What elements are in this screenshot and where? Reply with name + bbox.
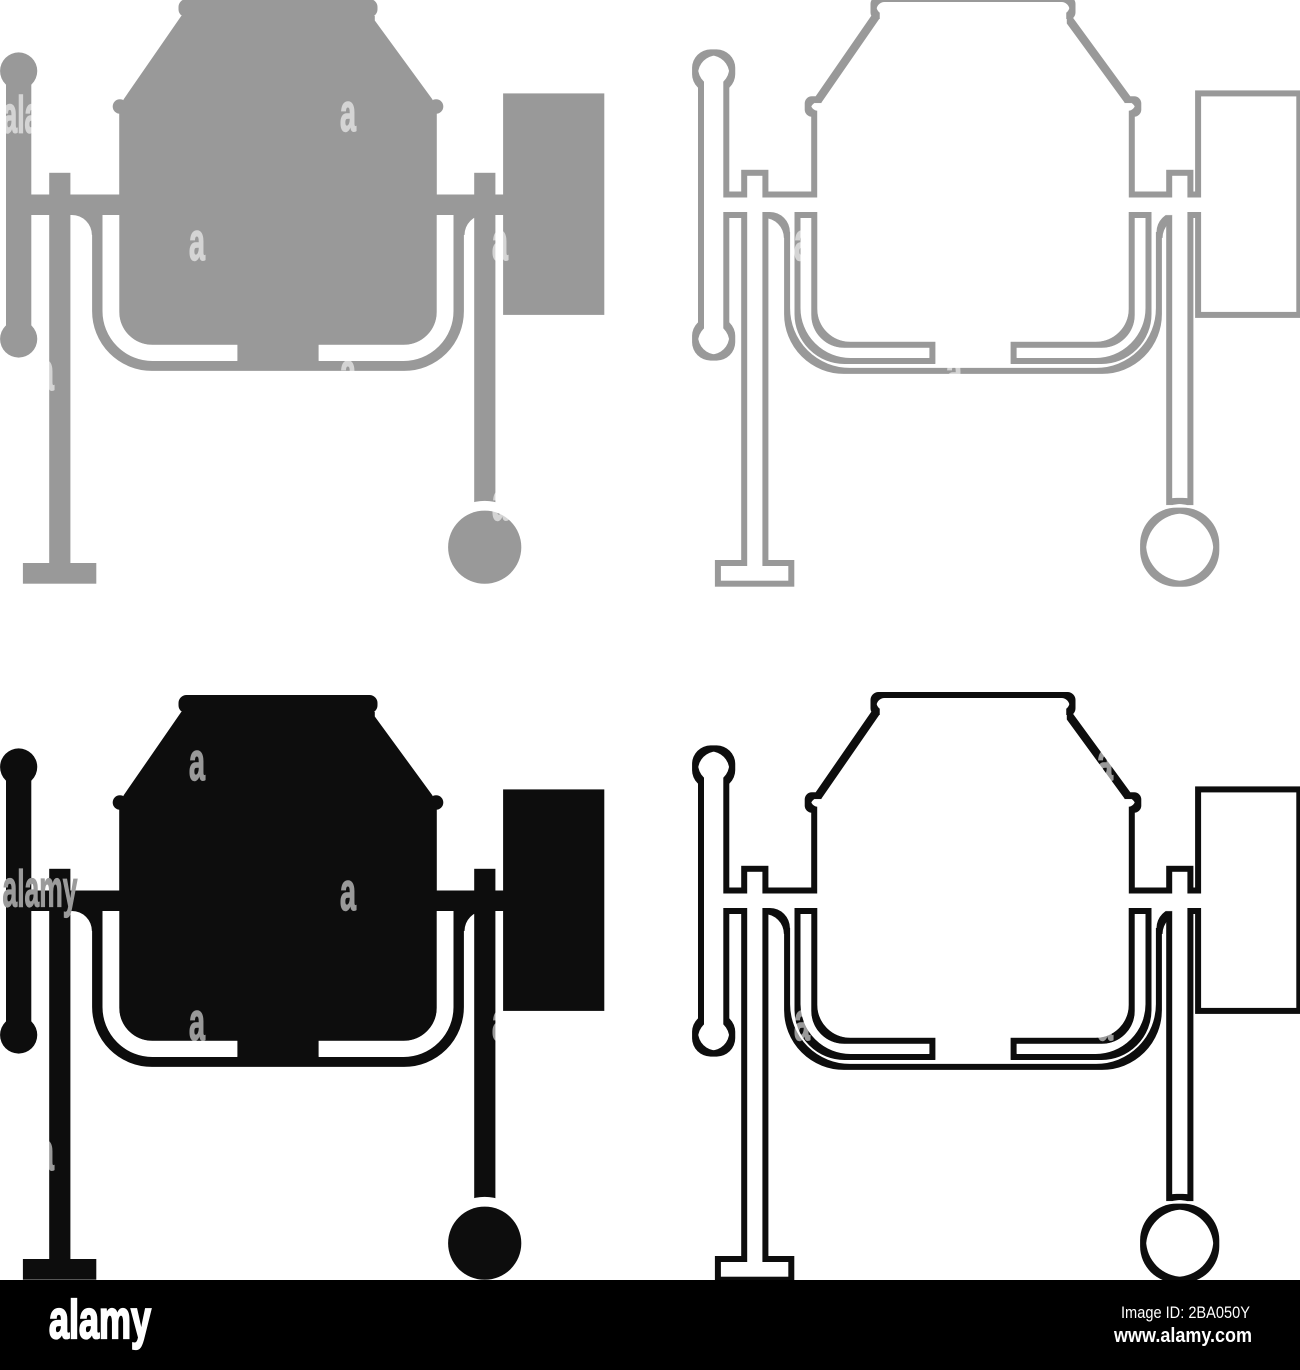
svg-text:a: a [946, 862, 963, 922]
svg-text:a: a [643, 342, 660, 402]
svg-text:a: a [1248, 342, 1265, 402]
svg-text:alamy: alamy [3, 861, 78, 919]
svg-text:a: a [1097, 212, 1114, 272]
svg-text:a: a [1248, 602, 1265, 662]
svg-text:a: a [946, 83, 963, 143]
svg-text:a: a [643, 1122, 660, 1182]
svg-text:a: a [492, 992, 509, 1052]
svg-text:alamy: alamy [49, 1290, 151, 1350]
svg-text:a: a [189, 212, 206, 272]
svg-text:a: a [1248, 1122, 1265, 1182]
svg-text:a: a [1248, 862, 1265, 922]
svg-text:a: a [492, 732, 509, 792]
svg-text:a: a [340, 83, 357, 143]
svg-text:a: a [340, 602, 357, 662]
svg-text:a: a [946, 342, 963, 402]
svg-text:a: a [492, 472, 509, 532]
svg-text:a: a [643, 602, 660, 662]
svg-text:a: a [492, 212, 509, 272]
svg-text:Image ID: 2BA050Y: Image ID: 2BA050Y [1121, 1303, 1250, 1322]
svg-text:a: a [794, 732, 811, 792]
svg-text:a: a [1097, 472, 1114, 532]
svg-text:a: a [38, 602, 55, 662]
svg-text:a: a [946, 602, 963, 662]
svg-text:a: a [1097, 732, 1114, 792]
svg-text:a: a [340, 1122, 357, 1182]
svg-text:a: a [794, 212, 811, 272]
svg-text:a: a [643, 83, 660, 143]
svg-text:a: a [1248, 83, 1265, 143]
svg-text:a: a [189, 472, 206, 532]
svg-text:a: a [340, 342, 357, 402]
svg-text:a: a [946, 1122, 963, 1182]
svg-text:a: a [794, 472, 811, 532]
svg-text:a: a [643, 862, 660, 922]
svg-text:a: a [189, 992, 206, 1052]
svg-text:a: a [794, 992, 811, 1052]
svg-text:www.alamy.com: www.alamy.com [1113, 1325, 1252, 1347]
svg-text:a: a [38, 1122, 55, 1182]
svg-text:a: a [189, 732, 206, 792]
svg-text:a: a [1097, 992, 1114, 1052]
svg-text:a: a [340, 862, 357, 922]
svg-text:alamy: alamy [3, 87, 78, 145]
svg-text:a: a [38, 342, 55, 402]
